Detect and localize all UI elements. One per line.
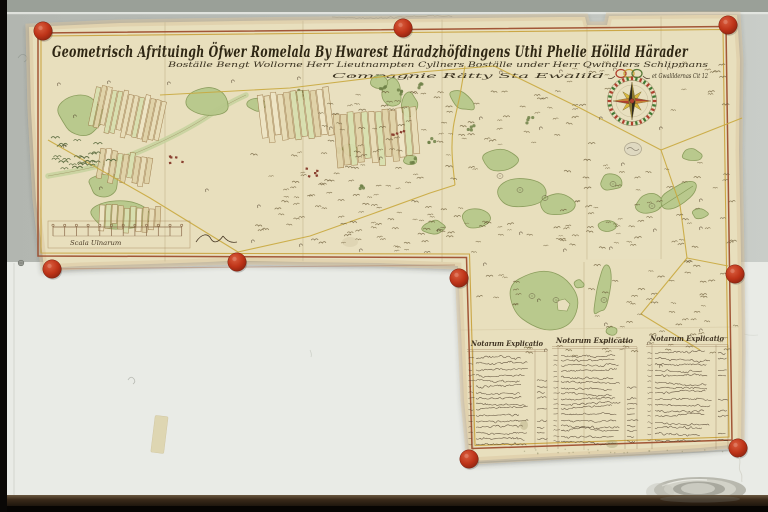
hamlet-building [305,167,308,170]
seal-stamp [625,143,642,156]
title-line-1: Geometrisch Afrituingh Öfwer Romelala By… [52,42,689,61]
table-edge [0,495,768,512]
hamlet-building [403,130,406,133]
hamlet-building [391,133,394,135]
compass-rose-icon [607,76,656,125]
film-edge-strip [0,0,7,512]
title-line-3b: et Gwalildernas Cit 12 [652,72,708,80]
photo-of-pinned-map: Geometrisch Afrituingh Öfwer Romelala By… [0,0,768,512]
scale-label: Scala Ulnarum [70,239,121,247]
title-line-2: Boställe Bengt Wollorne Herr Lieutnampte… [166,60,708,69]
meadow-blob [498,179,547,207]
wall-top-band [0,0,768,12]
meadow-blob [606,327,617,335]
table-header-1: Notarum Explicatio [470,339,543,348]
table-header-3: Notarum Explicatio [649,334,724,343]
table-header-2: Notarum Explicatio [555,336,633,345]
hamlet-building [316,170,319,173]
hamlet-building [169,162,172,165]
screw-icon [18,260,24,266]
scene-canvas: Geometrisch Afrituingh Öfwer Romelala By… [0,0,768,512]
hamlet-building [314,172,316,174]
